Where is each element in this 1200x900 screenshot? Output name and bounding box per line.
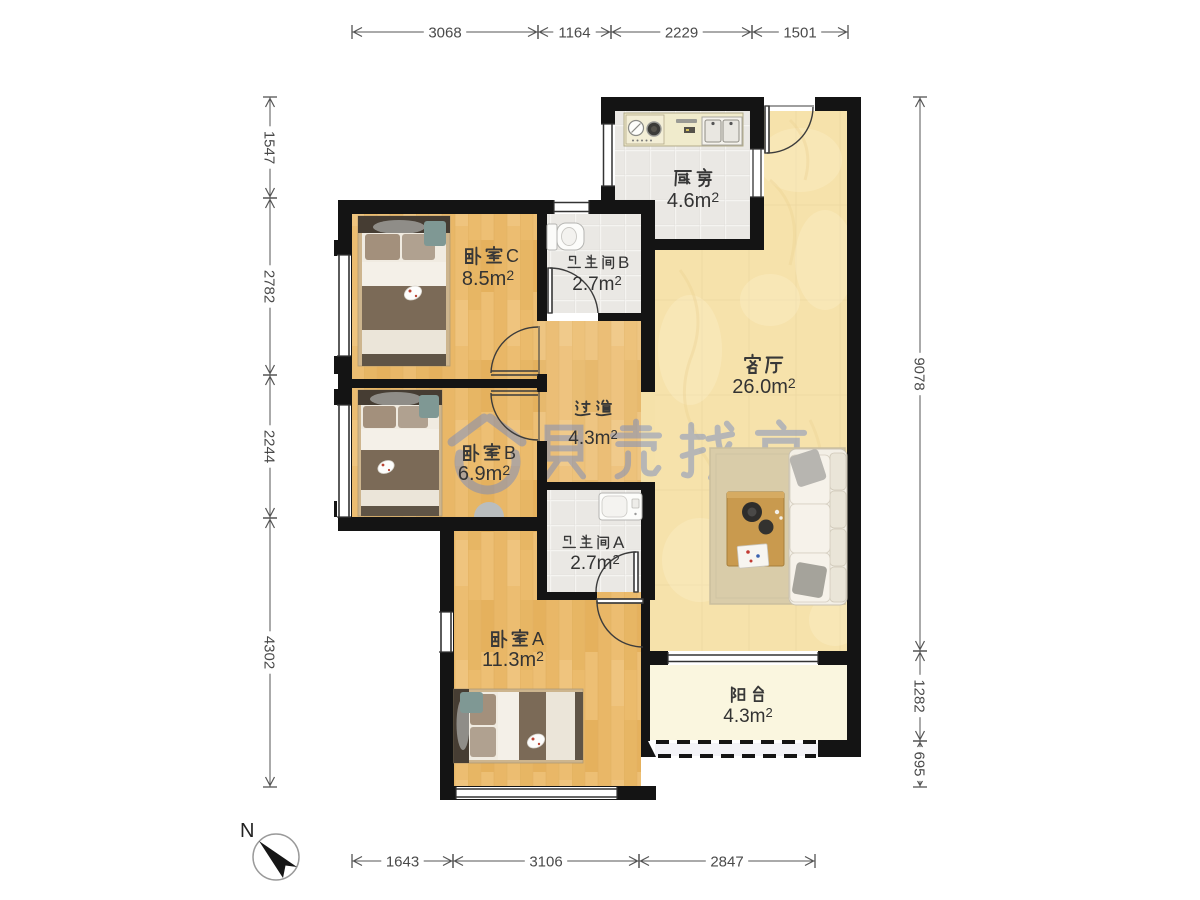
svg-text:1501: 1501 — [783, 25, 816, 42]
svg-text:C: C — [506, 246, 519, 266]
svg-text:4302: 4302 — [261, 636, 278, 669]
svg-text:3068: 3068 — [428, 25, 461, 42]
svg-text:A: A — [532, 629, 544, 649]
svg-text:2.7m2: 2.7m2 — [570, 552, 619, 574]
svg-text:1643: 1643 — [386, 854, 419, 871]
svg-text:B: B — [504, 443, 516, 463]
svg-text:2847: 2847 — [710, 854, 743, 871]
svg-text:N: N — [240, 820, 254, 842]
svg-text:9078: 9078 — [911, 357, 928, 390]
svg-text:4.3m2: 4.3m2 — [723, 705, 772, 727]
svg-text:4.3m2: 4.3m2 — [568, 427, 617, 449]
svg-text:1547: 1547 — [261, 131, 278, 164]
svg-text:695: 695 — [911, 751, 928, 776]
svg-text:3106: 3106 — [529, 854, 562, 871]
svg-text:11.3m2: 11.3m2 — [482, 648, 544, 671]
svg-text:2.7m2: 2.7m2 — [572, 273, 621, 295]
svg-text:A: A — [613, 533, 625, 552]
svg-text:B: B — [618, 253, 629, 272]
svg-text:2782: 2782 — [261, 270, 278, 303]
svg-text:1282: 1282 — [911, 679, 928, 712]
svg-text:2229: 2229 — [665, 25, 698, 42]
svg-text:1164: 1164 — [558, 25, 590, 42]
svg-text:26.0m2: 26.0m2 — [732, 375, 796, 398]
svg-text:2244: 2244 — [261, 430, 278, 463]
